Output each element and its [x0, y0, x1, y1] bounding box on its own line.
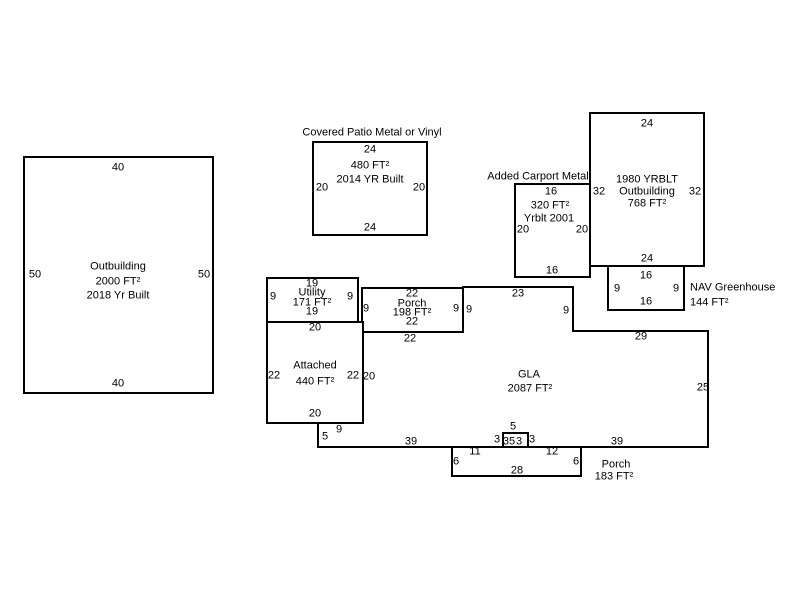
outbuilding-1980-dim-top: 24: [641, 119, 653, 130]
carport-area: 320 FT²: [531, 201, 570, 212]
gla-bump-dim-top: 5: [510, 422, 516, 433]
outbuilding-1980-label-2: Outbuilding: [619, 187, 675, 198]
outbuilding-left-dim-top: 40: [112, 163, 124, 174]
greenhouse-dim-top: 16: [640, 271, 652, 282]
gla-dim-right-step: 9: [563, 306, 569, 317]
gla-dim-top: 23: [512, 289, 524, 300]
gla-bump-dim-inner-a: 35: [503, 437, 515, 448]
attached-dim-right: 22: [347, 371, 359, 382]
porch-lower-label: Porch: [602, 460, 631, 471]
covered-patio-dim-left: 20: [316, 183, 328, 194]
outbuilding-1980-dim-right: 32: [689, 187, 701, 198]
porch-lower-dim-bottom: 28: [511, 466, 523, 477]
greenhouse-label: NAV Greenhouse: [690, 283, 775, 294]
porch-lower-dim-top-right: 12: [546, 447, 558, 458]
gla-area: 2087 FT²: [508, 384, 553, 395]
floorplan-sketch: 40 Outbuilding 2000 FT² 2018 Yr Built 50…: [0, 0, 800, 600]
carport-dim-right: 20: [576, 225, 588, 236]
porch-lower-area: 183 FT²: [595, 472, 634, 483]
porch-lower-dim-right: 6: [573, 457, 579, 468]
carport-dim-left: 20: [517, 225, 529, 236]
outbuilding-left-year: 2018 Yr Built: [87, 291, 150, 302]
porch-upper-dim-left: 9: [363, 304, 369, 315]
carport-year: Yrblt 2001: [524, 214, 574, 225]
utility-dim-left: 9: [270, 292, 276, 303]
gla-dim-bottom-right: 39: [611, 437, 623, 448]
gla-dim-notch-width: 9: [336, 425, 342, 436]
gla-dim-left: 20: [363, 372, 375, 383]
greenhouse-dim-right: 9: [673, 284, 679, 295]
utility-dim-bottom: 19: [306, 307, 318, 318]
covered-patio-dim-right: 20: [413, 183, 425, 194]
carport-title: Added Carport Metal: [487, 172, 589, 183]
attached-dim-top: 20: [309, 323, 321, 334]
outbuilding-left-dim-bottom: 40: [112, 379, 124, 390]
covered-patio-title: Covered Patio Metal or Vinyl: [302, 128, 441, 139]
gla-bump-dim-inner-b: 3: [516, 437, 522, 448]
covered-patio-year: 2014 YR Built: [336, 175, 403, 186]
outbuilding-left-dim-left: 50: [29, 270, 41, 281]
greenhouse-area: 144 FT²: [690, 298, 729, 309]
attached-label: Attached: [293, 361, 336, 372]
porch-upper-dim-right: 9: [453, 304, 459, 315]
utility-dim-right: 9: [347, 292, 353, 303]
greenhouse-dim-left: 9: [614, 284, 620, 295]
outbuilding-1980-dim-bottom: 24: [641, 254, 653, 265]
gla-dim-bottom-left: 39: [405, 437, 417, 448]
outbuilding-left-dim-right: 50: [198, 270, 210, 281]
gla-dim-top-right: 29: [635, 332, 647, 343]
gla-dim-porch-step: 9: [466, 305, 472, 316]
attached-area: 440 FT²: [296, 377, 335, 388]
covered-patio-area: 480 FT²: [351, 161, 390, 172]
gla-dim-right: 25: [697, 383, 709, 394]
carport-dim-top: 16: [545, 187, 557, 198]
porch-lower-dim-left: 6: [453, 457, 459, 468]
outbuilding-1980-dim-left: 32: [593, 187, 605, 198]
carport-dim-bottom: 16: [546, 266, 558, 277]
porch-upper-dim-bottom: 22: [406, 317, 418, 328]
outbuilding-left-label: Outbuilding: [90, 262, 146, 273]
attached-dim-bottom: 20: [309, 409, 321, 420]
covered-patio-dim-top: 24: [364, 145, 376, 156]
gla-dim-under-porch: 22: [404, 334, 416, 345]
outbuilding-left-area: 2000 FT²: [96, 277, 141, 288]
outbuilding-1980-label-1: 1980 YRBLT: [616, 175, 678, 186]
gla-bump-dim-right: 3: [529, 435, 535, 446]
gla-dim-notch-height: 5: [322, 432, 328, 443]
gla-bump-dim-left: 3: [494, 435, 500, 446]
outbuilding-1980-area: 768 FT²: [628, 199, 667, 210]
porch-lower-dim-top-left: 11: [469, 447, 480, 458]
covered-patio-dim-bottom: 24: [364, 223, 376, 234]
attached-dim-left: 22: [268, 371, 280, 382]
gla-label: GLA: [518, 370, 540, 381]
greenhouse-dim-bottom: 16: [640, 297, 652, 308]
